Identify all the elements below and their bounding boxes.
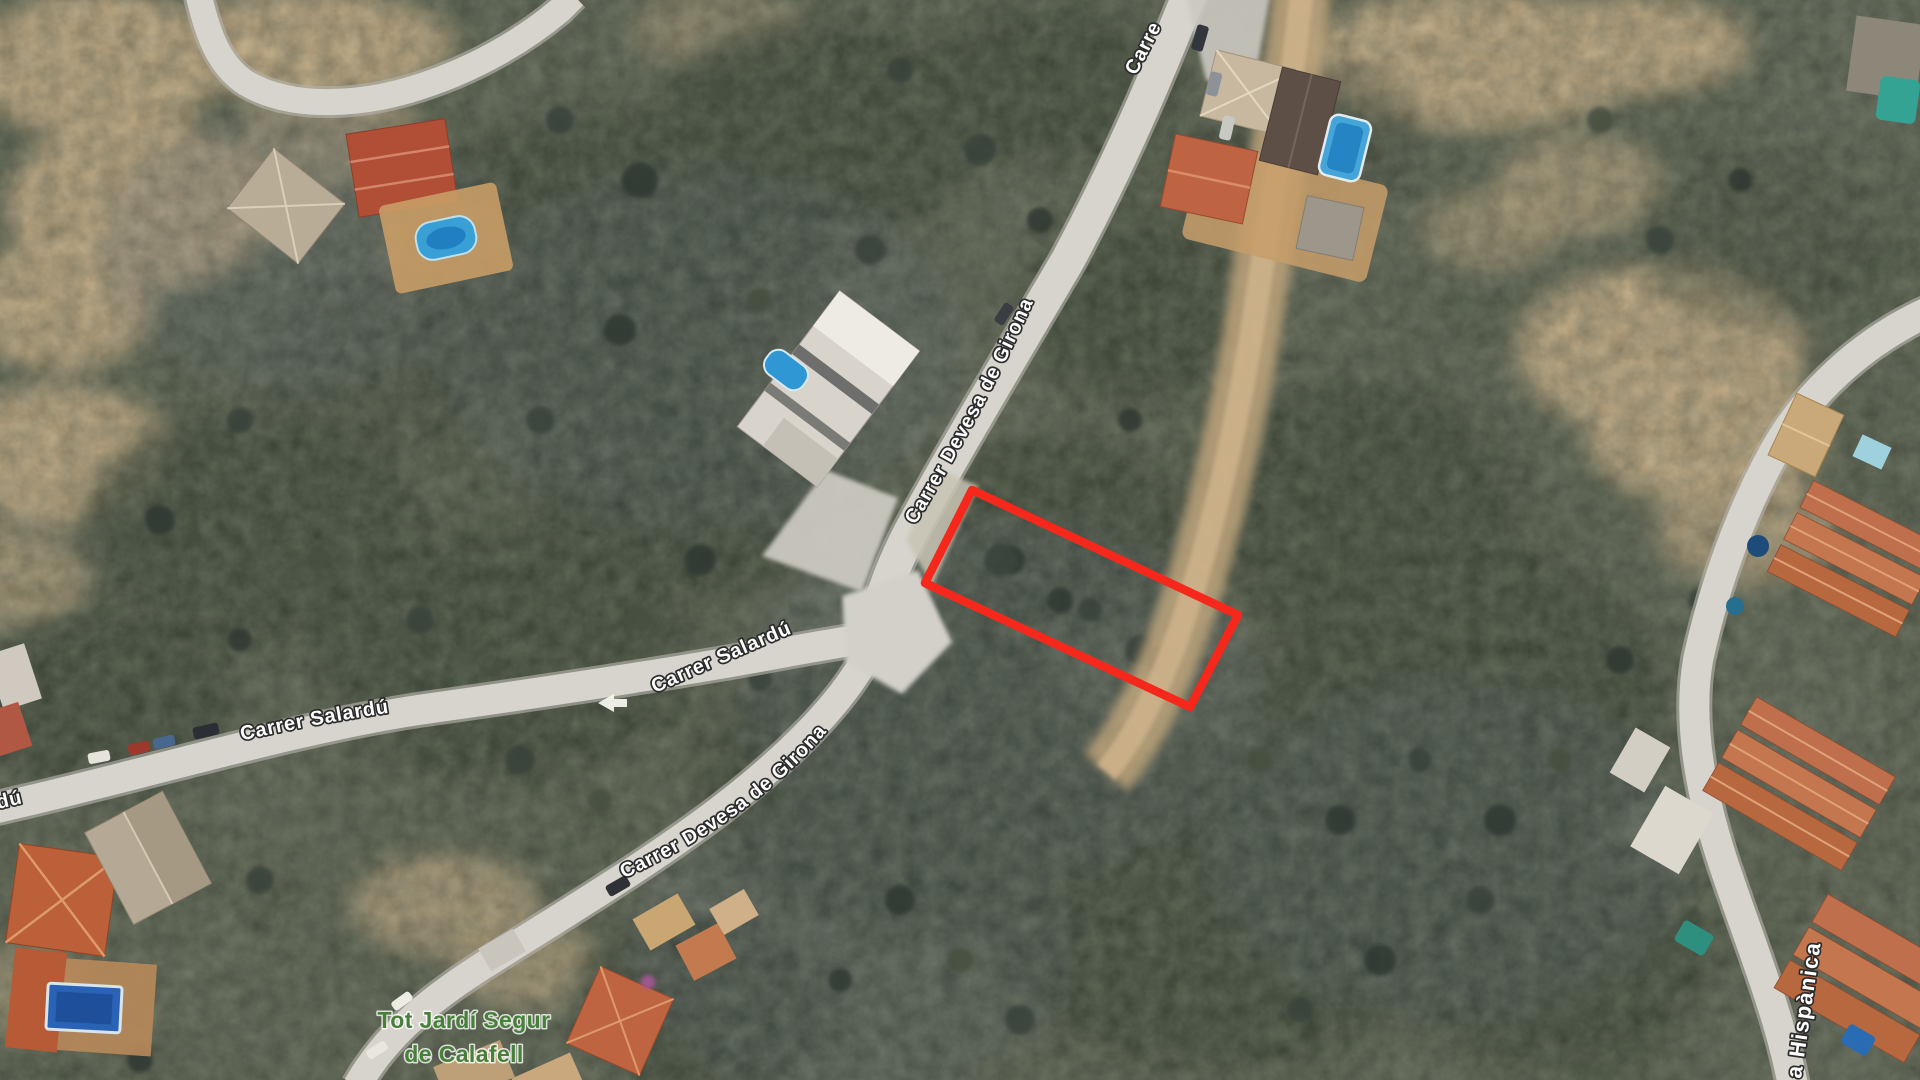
business-label-line1: Tot Jardí Segur <box>378 1007 551 1033</box>
swimming-pool <box>46 983 122 1033</box>
swimming-pool <box>1726 597 1744 615</box>
swimming-pool <box>1747 535 1769 557</box>
business-label-line2: de Calafell <box>404 1041 523 1067</box>
bougainvillea <box>641 975 655 989</box>
satellite-map[interactable]: Carrer Devesa de Girona Carre Carrer Sal… <box>0 0 1920 1080</box>
shed <box>1296 196 1364 261</box>
swimming-pool <box>1875 75 1920 124</box>
